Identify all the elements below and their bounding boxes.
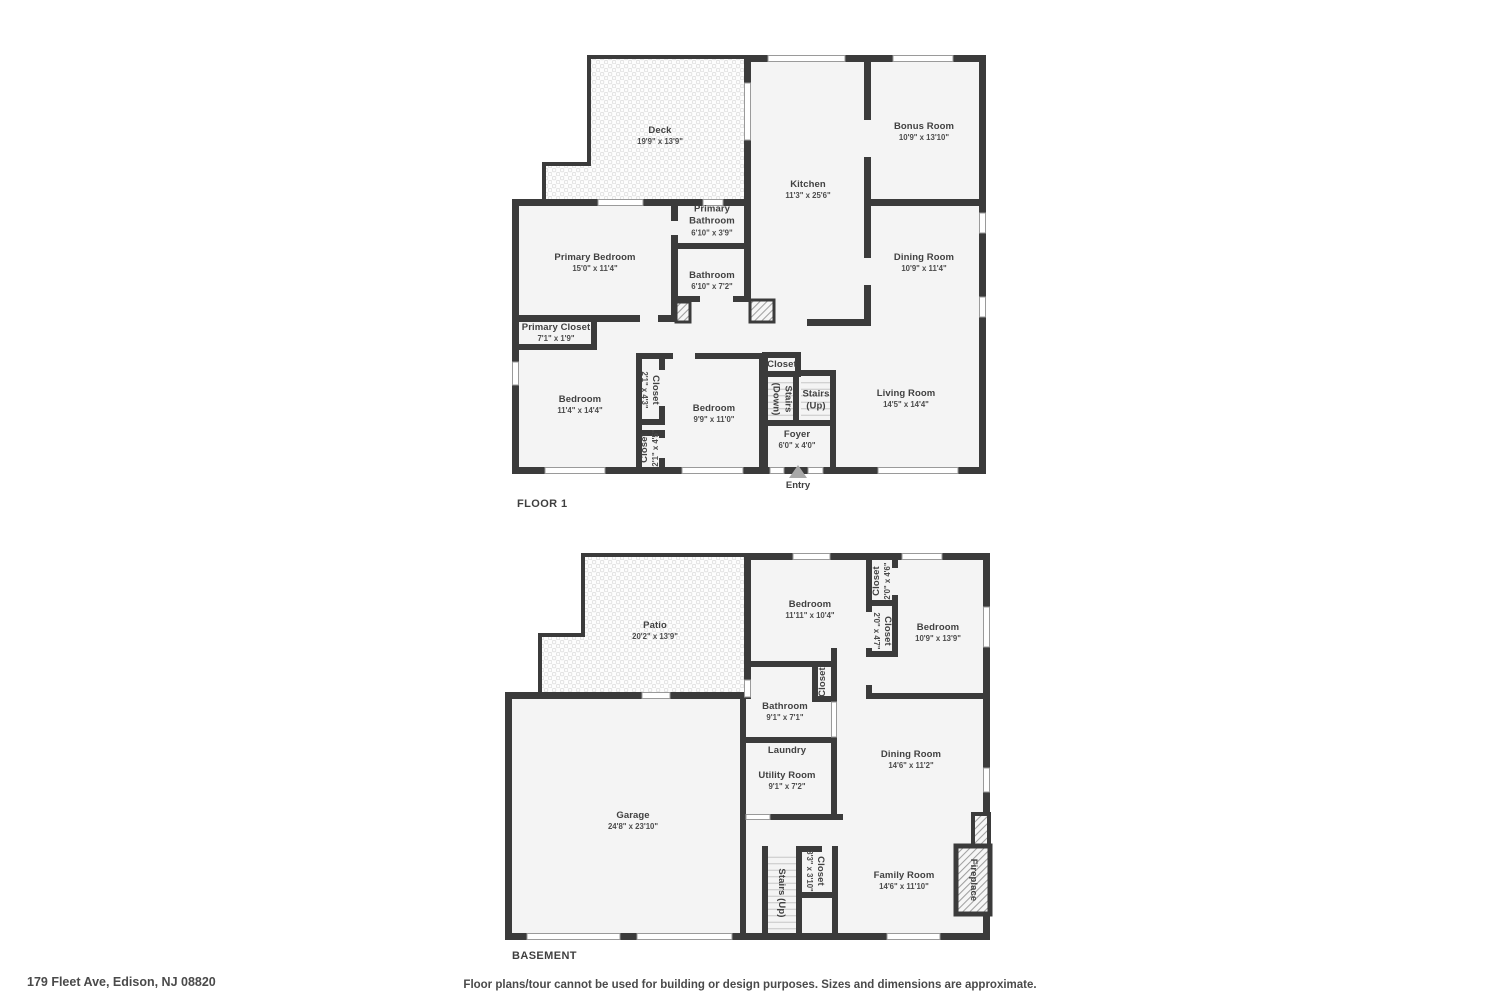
- room-label-deck: Deck 19'9" x 13'9": [637, 125, 683, 147]
- room-label-patio: Patio 20'2" x 13'9": [632, 620, 678, 642]
- entry-label: Entry: [786, 480, 810, 491]
- room-label-stairs-up: Stairs (Up): [798, 389, 834, 414]
- room-label-primary-bathroom: Primary Bathroom 6'10" x 3'9": [685, 204, 739, 239]
- room-label-family-room: Family Room 14'6" x 11'10": [874, 870, 935, 892]
- room-label-basement-hall-closet: Closet: [817, 667, 829, 697]
- floorplan-drawing: [0, 0, 1500, 1000]
- room-label-foyer: Foyer 6'0" x 4'0": [778, 429, 815, 451]
- room-label-utility-room: Utility Room 9'1" x 7'2": [758, 770, 815, 792]
- room-label-basement-closet-top: Closet 2'0" x 4'6": [871, 562, 893, 599]
- duct-box: [750, 300, 774, 322]
- room-label-kitchen: Kitchen 11'3" x 25'6": [785, 179, 830, 201]
- floorplan-page: Deck 19'9" x 13'9" Kitchen 11'3" x 25'6"…: [0, 0, 1500, 1000]
- basement-title: BASEMENT: [512, 950, 577, 962]
- room-label-closet-a: Closet 2'1" x 4'3": [639, 371, 661, 408]
- room-label-laundry: Laundry: [768, 745, 806, 757]
- room-label-basement-stairs-closet: Closet 3'3" x 3'10": [804, 850, 826, 891]
- room-label-living-room: Living Room 14'5" x 14'4": [877, 388, 936, 410]
- room-label-primary-closet: Primary Closet 7'1" x 1'9": [522, 322, 590, 344]
- room-label-bedroom-left: Bedroom 11'4" x 14'4": [557, 394, 602, 416]
- duct-box: [676, 302, 690, 322]
- room-label-hall-closet: Closet: [767, 359, 797, 371]
- room-label-basement-bedroom-left: Bedroom 11'11" x 10'4": [785, 599, 834, 621]
- room-label-bedroom-middle: Bedroom 9'9" x 11'0": [693, 403, 735, 425]
- room-label-bonus-room: Bonus Room 10'9" x 13'10": [894, 121, 954, 143]
- room-label-stairs-down: Stairs (Down): [769, 377, 794, 421]
- room-label-basement-bathroom: Bathroom 9'1" x 7'1": [762, 701, 808, 723]
- room-label-basement-dining-room: Dining Room 14'6" x 11'2": [881, 749, 941, 771]
- room-label-closet-b: Closet 2'1" x 4'5": [639, 429, 661, 466]
- room-label-dining-room: Dining Room 10'9" x 11'4": [894, 252, 954, 274]
- room-label-garage: Garage 24'8" x 23'10": [608, 810, 658, 832]
- room-label-fireplace: Fireplace: [967, 859, 979, 902]
- room-label-primary-bedroom: Primary Bedroom 15'0" x 11'4": [554, 252, 635, 274]
- room-label-bathroom: Bathroom 6'10" x 7'2": [689, 270, 735, 292]
- chimney-box: [973, 814, 989, 848]
- room-label-basement-closet-mid: Closet 2'0" x 4'7": [871, 612, 893, 649]
- floor1-title: FLOOR 1: [517, 498, 567, 510]
- room-label-basement-stairs-up: Stairs (Up): [775, 868, 787, 917]
- room-label-basement-bedroom-right: Bedroom 10'9" x 13'9": [915, 622, 961, 644]
